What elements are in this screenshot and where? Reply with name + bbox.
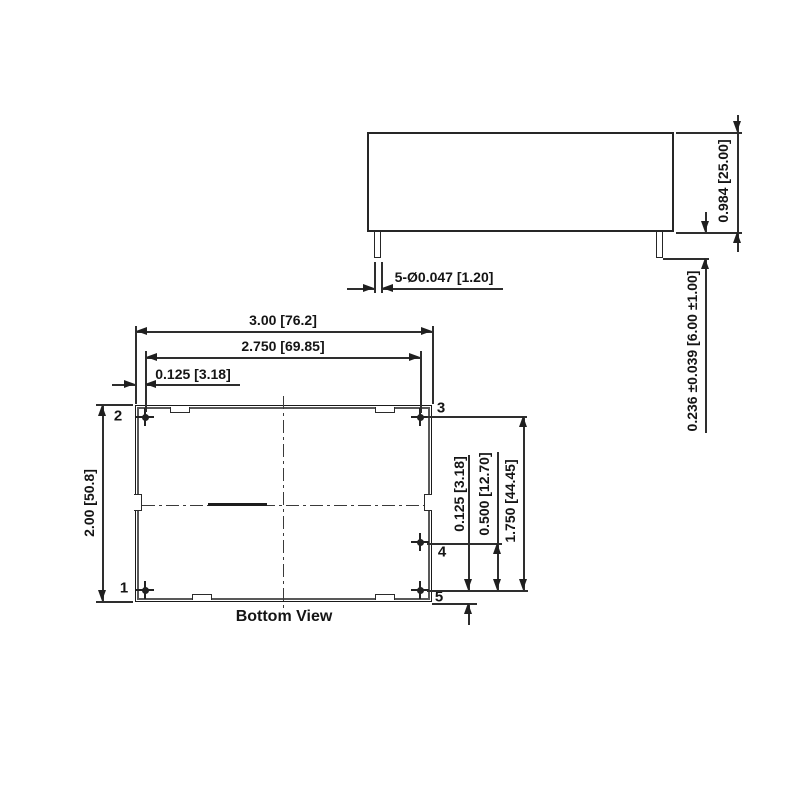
- arrow-right-icon: [421, 327, 432, 335]
- pin5-edge-offset-dim-text: 0.125 [3.18]: [451, 456, 467, 532]
- bottom-view-title: Bottom View: [236, 608, 333, 626]
- arrow-right-icon: [124, 380, 135, 388]
- case-tab-right: [424, 494, 432, 511]
- ext-line-pin4: [427, 543, 502, 545]
- ext-line-bottom-left-corner: [96, 601, 133, 603]
- arrow-left-icon: [382, 284, 393, 292]
- pin-edge-offset-dim-text: 0.125 [3.18]: [155, 366, 231, 382]
- dim-line-overall-height: [102, 405, 104, 601]
- center-line-vertical: [283, 396, 284, 612]
- arrow-down-icon: [464, 579, 472, 590]
- arrow-down-icon: [733, 121, 741, 132]
- arrow-left-icon: [146, 353, 157, 361]
- dim-line-pin-row-span: [145, 357, 420, 359]
- arrow-up-icon: [701, 258, 709, 269]
- case-tab-top-left: [170, 407, 190, 413]
- leader-line-diameter: [382, 288, 503, 290]
- arrow-up-icon: [464, 603, 472, 614]
- center-line-thick-segment: [208, 503, 267, 506]
- pin3-pin5-dim-text: 1.750 [44.45]: [502, 459, 518, 542]
- pin-diameter-dim-text: 5-Ø0.047 [1.20]: [395, 269, 494, 285]
- pin-dot: [417, 587, 424, 594]
- pin-4-marker: [411, 533, 429, 551]
- pin-dot: [417, 414, 424, 421]
- ext-line-pin5: [427, 590, 528, 592]
- ext-line-left-edge: [135, 326, 137, 404]
- overall-width-dim-text: 3.00 [76.2]: [249, 312, 317, 328]
- arrow-up-icon: [519, 416, 527, 427]
- case-tab-bottom-left: [192, 594, 212, 600]
- center-line-horizontal: [142, 505, 424, 506]
- dim-line-pin4-pin5: [497, 452, 499, 590]
- pin-row-span-dim-text: 2.750 [69.85]: [241, 338, 324, 354]
- ext-line-right-edge: [432, 326, 434, 404]
- arrow-left-icon: [136, 327, 147, 335]
- arrow-right-icon: [363, 284, 374, 292]
- case-tab-top-right: [375, 407, 395, 413]
- ext-line-pin-col-right: [420, 351, 422, 413]
- pin-length-dim-text: 0.236 ±0.039 [6.00 ±1.00]: [684, 271, 700, 432]
- pin-dot: [417, 539, 424, 546]
- arrow-up-icon: [98, 405, 106, 416]
- dim-tail-pin-length-lower: [705, 258, 707, 433]
- case-tab-left: [134, 494, 142, 511]
- dim-line-overall-width: [135, 331, 432, 333]
- side-pin-right: [656, 232, 663, 258]
- arrow-down-icon: [98, 590, 106, 601]
- arrow-down-icon: [519, 579, 527, 590]
- arrow-right-icon: [409, 353, 420, 361]
- dim-line-pin3-pin5: [523, 416, 525, 590]
- pin4-pin5-dim-text: 0.500 [12.70]: [476, 452, 492, 535]
- case-tab-bottom-right: [375, 594, 395, 600]
- pin-1-label: 1: [120, 580, 128, 597]
- ext-line-pin-left-edge: [374, 262, 376, 293]
- pin-4-label: 4: [438, 544, 446, 561]
- pin-1-marker: [136, 581, 154, 599]
- pin-dot: [142, 587, 149, 594]
- pin-dot: [142, 414, 149, 421]
- technical-drawing-canvas: 0.984 [25.00] 0.236 ±0.039 [6.00 ±1.00] …: [0, 0, 800, 800]
- overall-height-dim-text: 2.00 [50.8]: [81, 469, 97, 537]
- dim-tail-pin-offset-right: [145, 384, 240, 386]
- pin-3-label: 3: [437, 400, 445, 417]
- dim-tail-pin5-offset-upper: [468, 455, 470, 590]
- side-pin-left: [374, 232, 381, 258]
- arrow-down-icon: [493, 579, 501, 590]
- pin-2-label: 2: [114, 408, 122, 425]
- ext-line-body-top: [676, 132, 742, 134]
- arrow-down-icon: [701, 221, 709, 232]
- arrow-up-icon: [493, 543, 501, 554]
- arrow-up-icon: [733, 232, 741, 243]
- ext-line-pin3: [427, 416, 527, 418]
- module-body-side: [367, 132, 674, 232]
- body-height-dim-text: 0.984 [25.00]: [715, 139, 731, 222]
